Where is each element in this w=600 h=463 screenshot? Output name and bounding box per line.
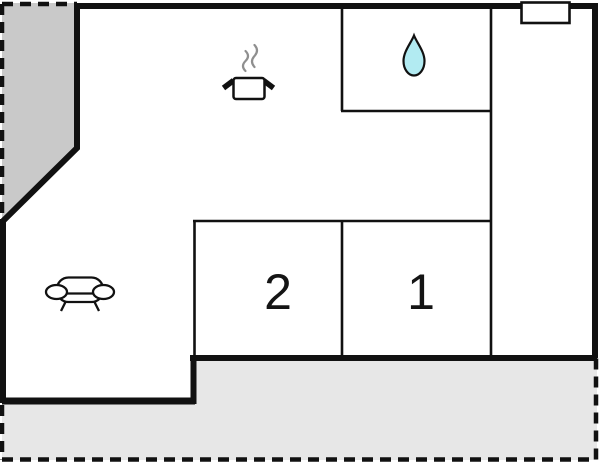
window-symbol	[522, 3, 570, 24]
room-2-label: 2	[264, 264, 292, 320]
sofa-armrest-right	[93, 285, 114, 299]
pot-body	[234, 78, 265, 99]
room-1-label: 1	[407, 264, 435, 320]
floor-plan: 2 1	[0, 0, 600, 463]
sofa-armrest-left	[46, 285, 67, 299]
